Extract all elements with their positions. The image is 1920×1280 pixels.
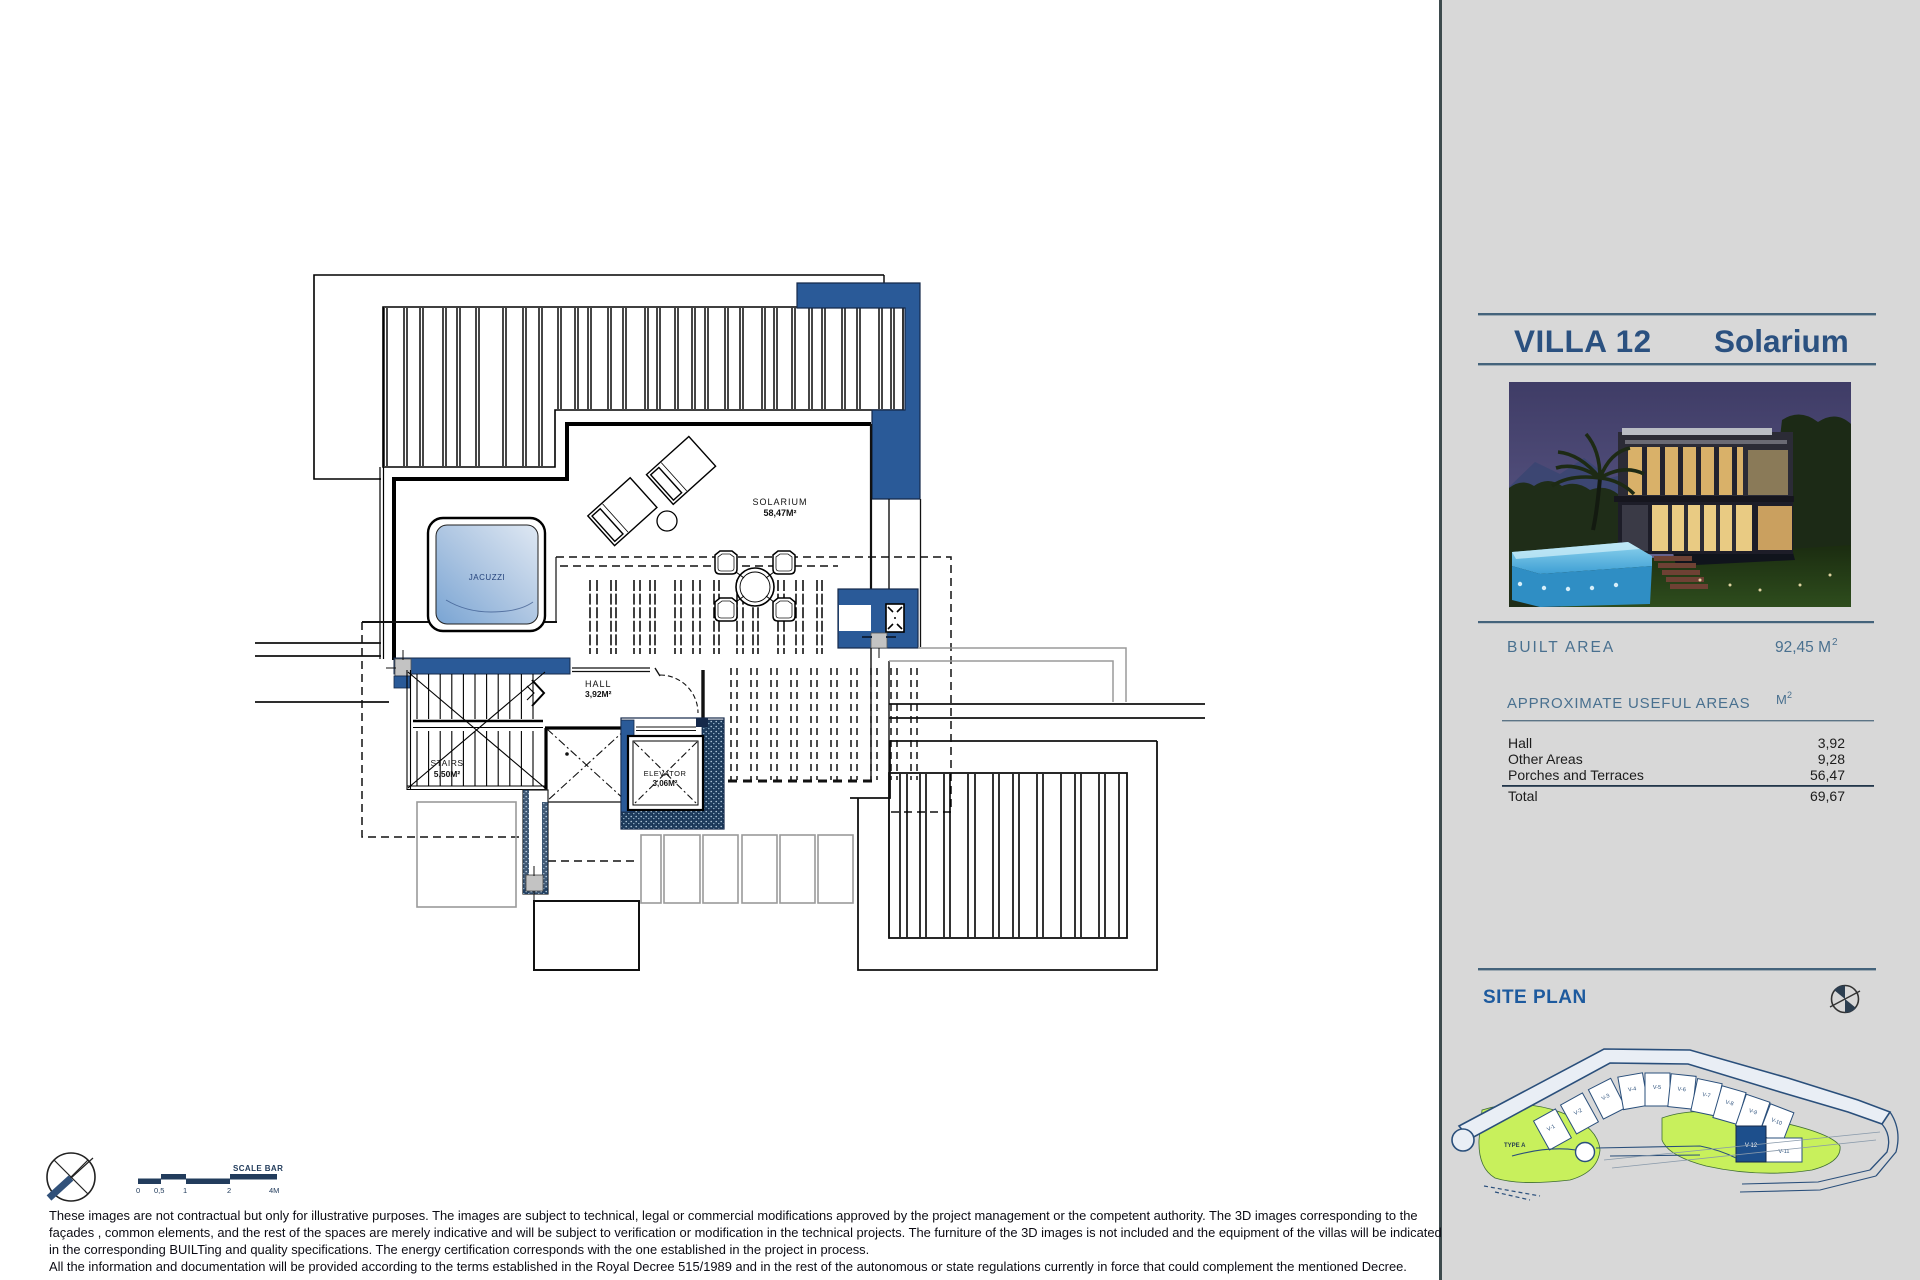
svg-text:3,92M²: 3,92M² [585,689,612,699]
svg-text:Hall: Hall [1508,735,1532,751]
svg-text:VILLA 12: VILLA 12 [1514,323,1652,359]
svg-text:58,47M²: 58,47M² [763,508,796,518]
svg-text:V-12: V-12 [1745,1143,1758,1149]
svg-text:BUILT AREA: BUILT AREA [1507,639,1615,656]
svg-text:STAIRS: STAIRS [430,758,463,768]
svg-text:3,92: 3,92 [1818,735,1845,751]
svg-text:69,67: 69,67 [1810,788,1845,804]
svg-text:5,50M²: 5,50M² [434,769,461,779]
svg-text:3,06M²: 3,06M² [653,779,678,788]
svg-text:All the information and docu: All the information and documentation wi… [49,1259,1407,1274]
svg-text:Solarium: Solarium [1714,323,1849,359]
svg-text:0,5: 0,5 [154,1186,164,1195]
svg-text:92,45 M: 92,45 M [1775,639,1831,656]
svg-text:56,47: 56,47 [1810,767,1845,783]
svg-text:V-6: V-6 [1677,1087,1686,1094]
svg-text:SCALE BAR: SCALE BAR [233,1164,283,1173]
svg-text:0: 0 [136,1186,140,1195]
svg-text:2: 2 [227,1186,231,1195]
svg-text:2: 2 [1787,690,1792,700]
svg-text:SITE PLAN: SITE PLAN [1483,987,1587,1008]
svg-text:9,28: 9,28 [1818,751,1845,767]
svg-text:1: 1 [183,1186,187,1195]
svg-text:Other Areas: Other Areas [1508,751,1583,767]
svg-text:in the corresponding BUILTi: in the corresponding BUILTing and qualit… [49,1242,869,1257]
svg-text:2: 2 [1832,637,1838,648]
svg-text:APPROXIMATE USEFUL AREAS: APPROXIMATE USEFUL AREAS [1507,695,1750,712]
svg-text:V-5: V-5 [1653,1085,1661,1091]
svg-text:ELEVATOR: ELEVATOR [644,769,687,778]
svg-text:Porches and Terraces: Porches and Terraces [1508,767,1644,783]
svg-text:JACUZZI: JACUZZI [469,573,505,582]
svg-text:TYPE A: TYPE A [1504,1143,1526,1149]
svg-text:These images are not contra: These images are not contractual but onl… [49,1208,1418,1223]
svg-text:Total: Total [1508,788,1538,804]
svg-text:4M: 4M [269,1186,279,1195]
svg-text:HALL: HALL [585,679,612,689]
svg-text:M: M [1776,692,1787,707]
svg-text:façades , common elements, and: façades , common elements, and the rest … [49,1225,1442,1240]
svg-text:SOLARIUM: SOLARIUM [752,497,807,507]
